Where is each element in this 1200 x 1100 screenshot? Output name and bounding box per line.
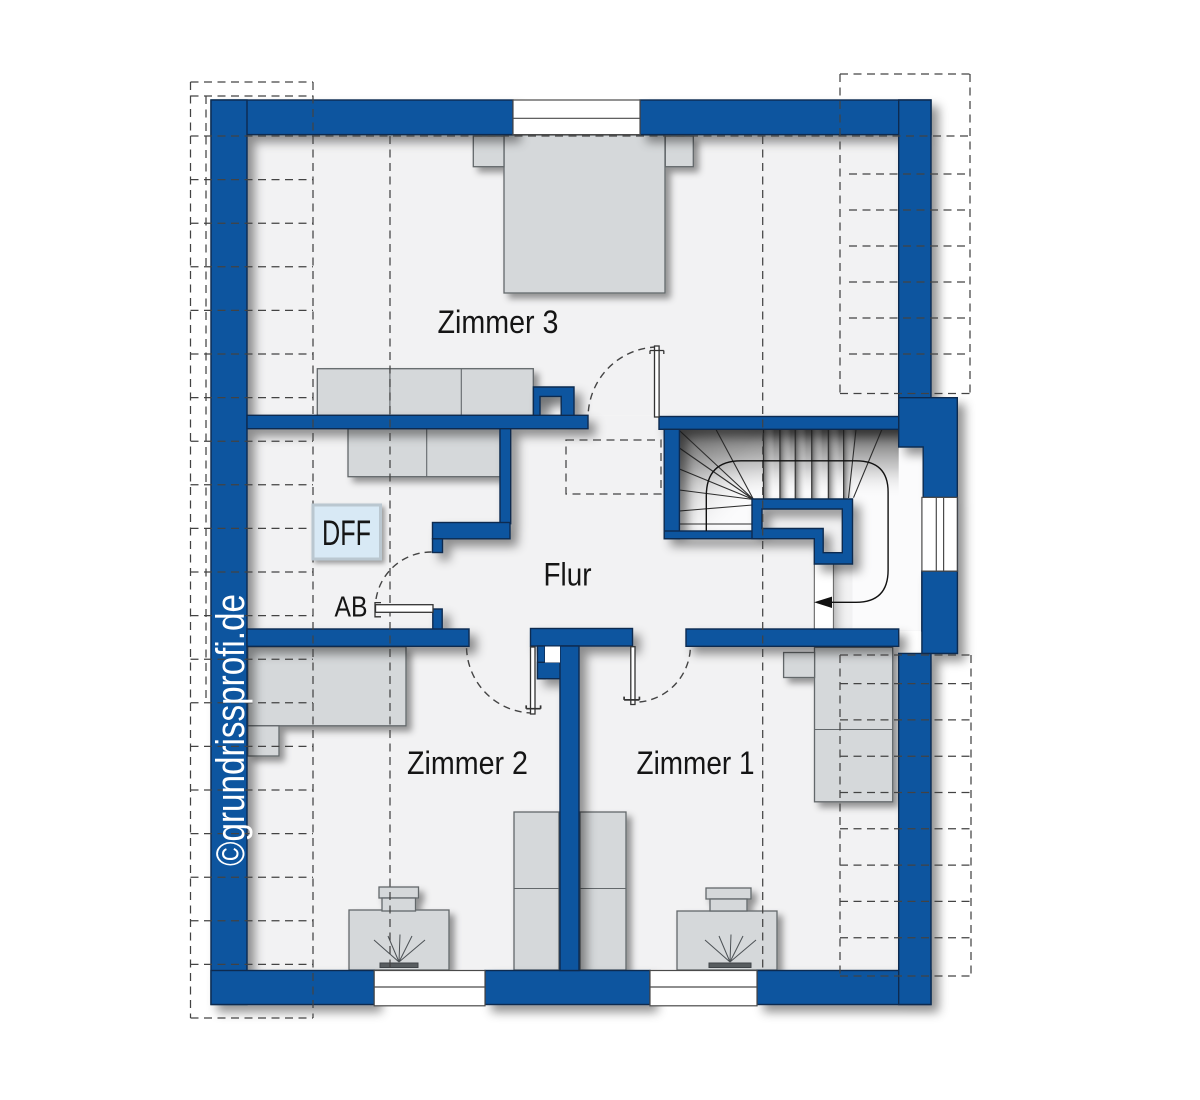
svg-text:Zimmer 3: Zimmer 3	[438, 304, 559, 340]
svg-text:©grundrissprofi.de: ©grundrissprofi.de	[209, 594, 253, 866]
svg-text:Zimmer 2: Zimmer 2	[407, 745, 528, 781]
svg-text:DFF: DFF	[322, 514, 371, 553]
svg-text:AB: AB	[335, 592, 368, 624]
svg-text:Zimmer 1: Zimmer 1	[637, 745, 755, 781]
svg-text:Flur: Flur	[544, 557, 592, 593]
